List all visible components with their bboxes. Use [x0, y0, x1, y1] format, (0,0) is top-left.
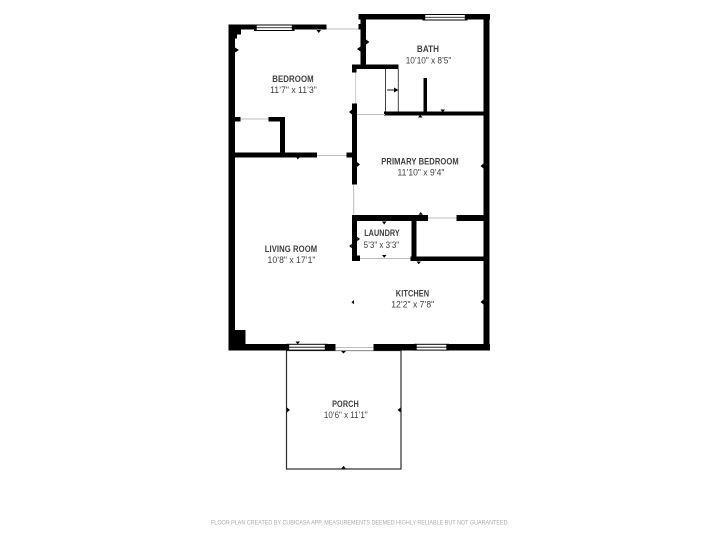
svg-text:PORCH: PORCH — [332, 399, 359, 409]
svg-text:5’3" x 3’3": 5’3" x 3’3" — [364, 240, 400, 250]
svg-text:BEDROOM: BEDROOM — [272, 74, 314, 84]
svg-text:BATH: BATH — [417, 44, 439, 54]
svg-text:11’7" x 11’3": 11’7" x 11’3" — [270, 85, 317, 95]
svg-text:10’10" x 8’5": 10’10" x 8’5" — [406, 56, 452, 66]
svg-text:10’6" x 11’1": 10’6" x 11’1" — [324, 410, 368, 420]
svg-text:LAUNDRY: LAUNDRY — [364, 228, 400, 238]
svg-text:PRIMARY BEDROOM: PRIMARY BEDROOM — [381, 156, 459, 166]
svg-text:FLOOR PLAN CREATED BY CUBICASA: FLOOR PLAN CREATED BY CUBICASA APP. MEAS… — [211, 520, 509, 527]
svg-text:KITCHEN: KITCHEN — [396, 288, 429, 298]
svg-text:11’10" x 9’4": 11’10" x 9’4" — [398, 168, 445, 178]
svg-text:12’2" x 7’8": 12’2" x 7’8" — [391, 300, 434, 310]
svg-text:10’8" x 17’1": 10’8" x 17’1" — [268, 255, 316, 265]
svg-text:LIVING ROOM: LIVING ROOM — [265, 244, 318, 254]
